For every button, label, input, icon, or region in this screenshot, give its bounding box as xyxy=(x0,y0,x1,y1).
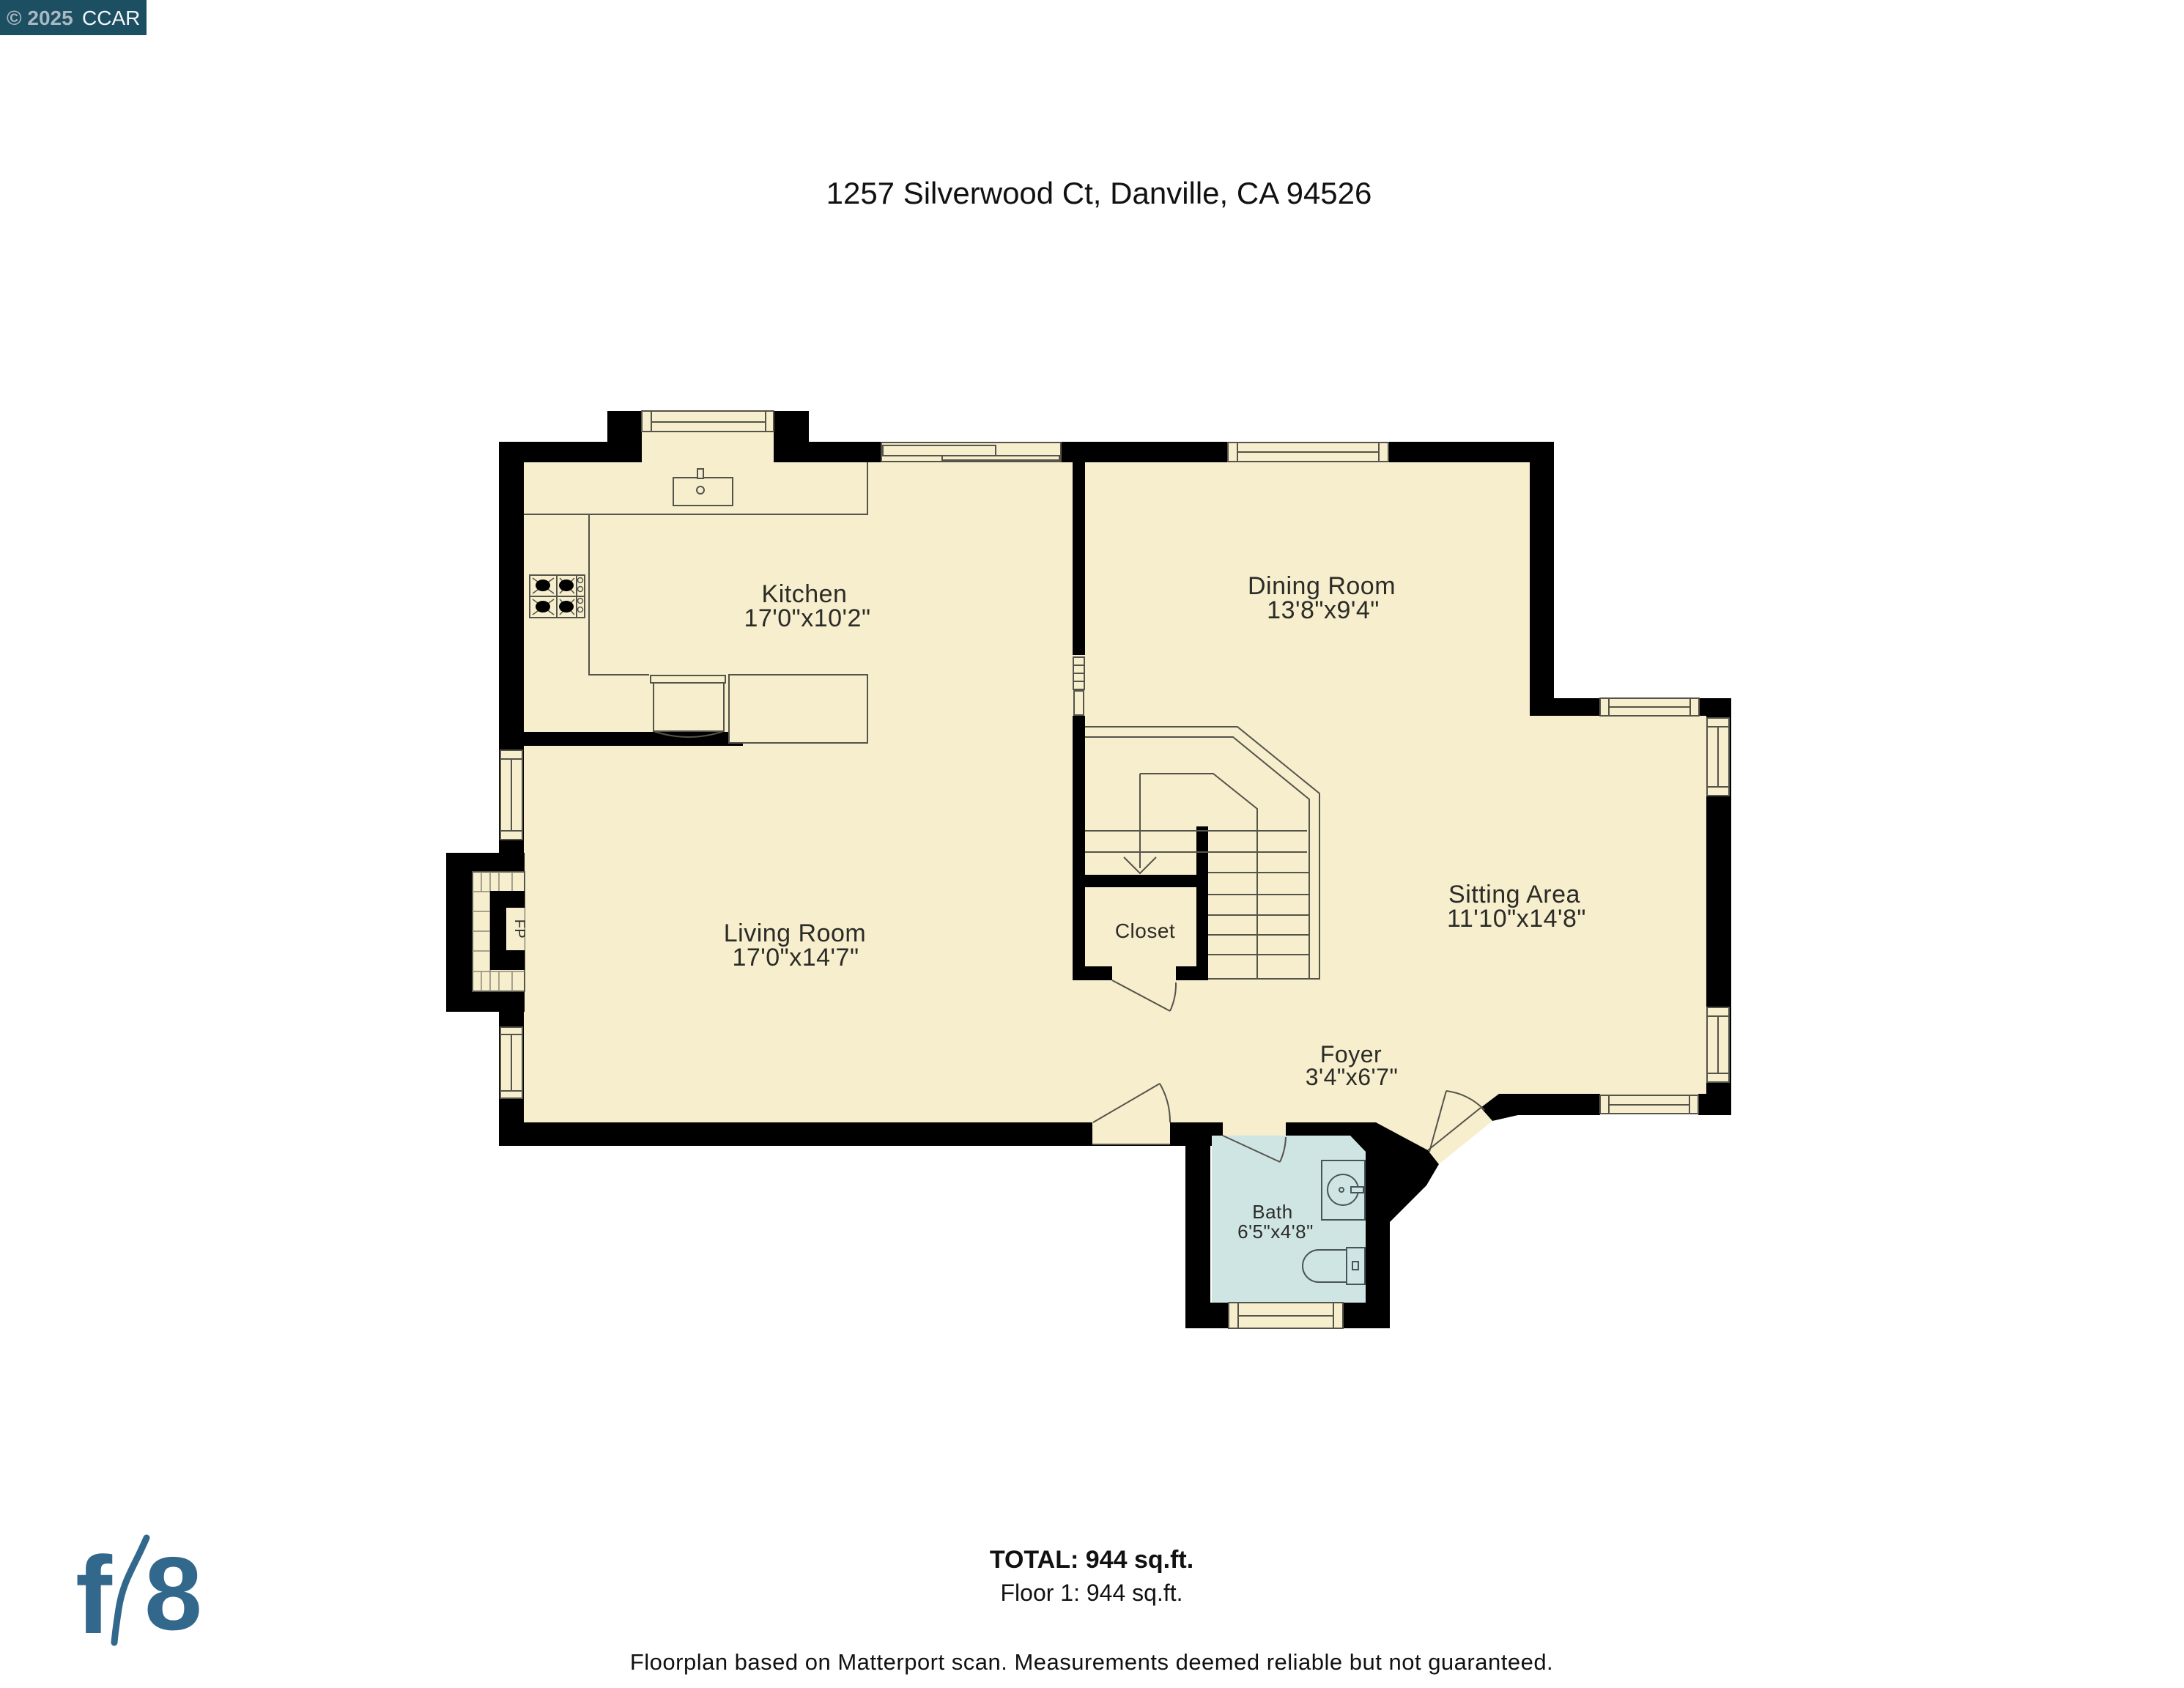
svg-text:© 2025: © 2025 xyxy=(7,7,73,29)
svg-text:CCAR: CCAR xyxy=(82,7,140,29)
svg-text:3'4"x6'7": 3'4"x6'7" xyxy=(1306,1064,1399,1090)
svg-text:Closet: Closet xyxy=(1115,919,1175,942)
svg-text:1257 Silverwood Ct, Danville,: 1257 Silverwood Ct, Danville, CA 94526 xyxy=(826,176,1372,210)
svg-text:Floorplan based on Matterport: Floorplan based on Matterport scan. Meas… xyxy=(630,1649,1553,1675)
svg-text:13'8"x9'4": 13'8"x9'4" xyxy=(1267,596,1380,624)
svg-text:f: f xyxy=(75,1533,113,1656)
svg-text:6'5"x4'8": 6'5"x4'8" xyxy=(1237,1221,1314,1243)
svg-text:17'0"x14'7": 17'0"x14'7" xyxy=(732,944,859,971)
svg-text:8: 8 xyxy=(144,1536,202,1652)
svg-text:FP: FP xyxy=(511,919,528,939)
svg-text:Floor 1: 944 sq.ft.: Floor 1: 944 sq.ft. xyxy=(1000,1580,1182,1606)
svg-text:Bath: Bath xyxy=(1252,1201,1293,1223)
svg-text:17'0"x10'2": 17'0"x10'2" xyxy=(744,604,870,632)
svg-text:11'10"x14'8": 11'10"x14'8" xyxy=(1447,905,1586,933)
svg-text:TOTAL: 944 sq.ft.: TOTAL: 944 sq.ft. xyxy=(990,1546,1193,1574)
